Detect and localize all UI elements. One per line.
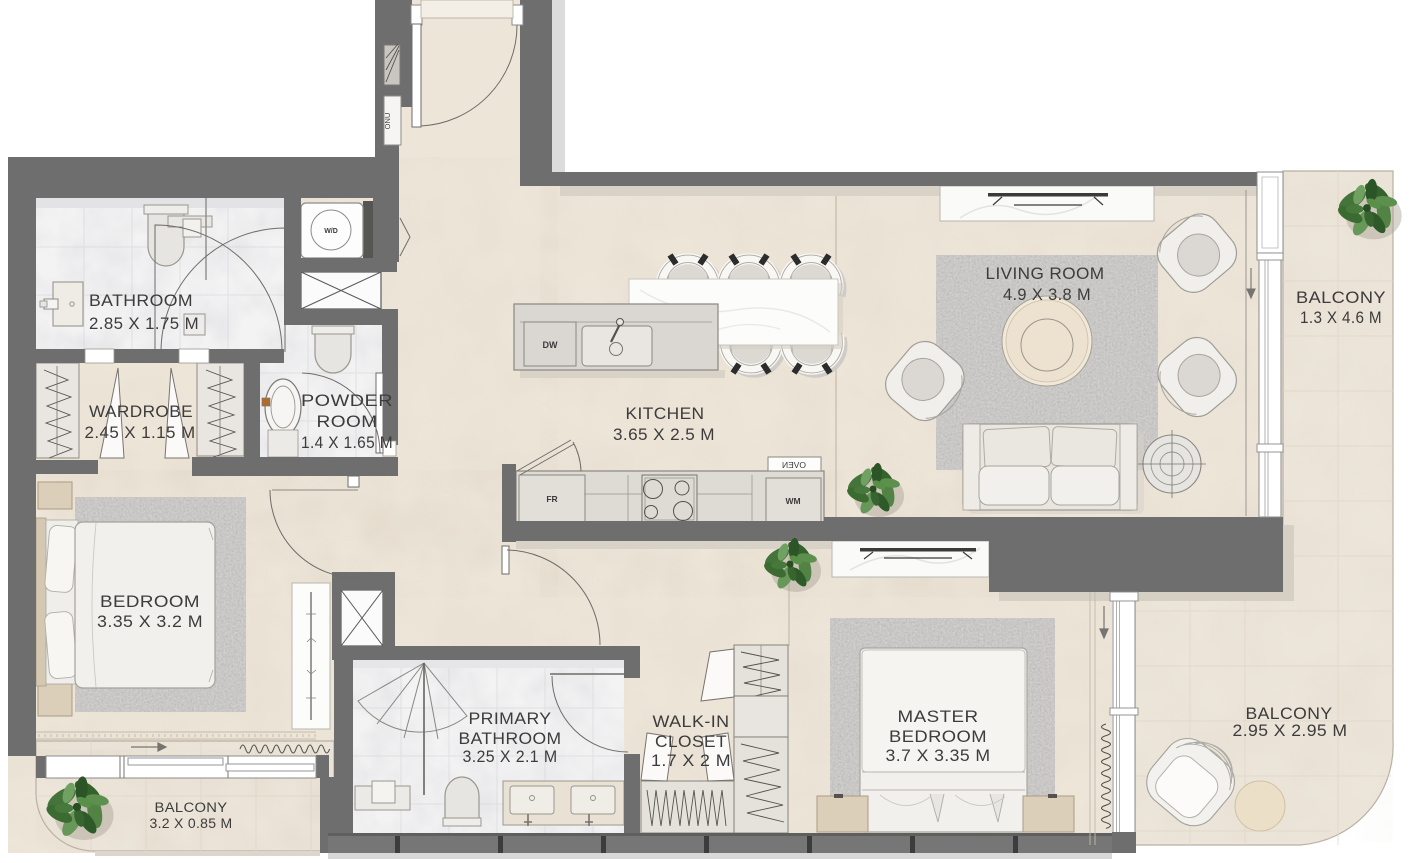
svg-text:1.7 X 2 M: 1.7 X 2 M (651, 751, 731, 770)
svg-text:WARDROBE: WARDROBE (89, 402, 193, 421)
svg-text:3.7 X 3.35 M: 3.7 X 3.35 M (886, 746, 991, 765)
svg-text:3.35 X 3.2 M: 3.35 X 3.2 M (97, 612, 203, 631)
svg-text:BATHROOM: BATHROOM (459, 729, 562, 748)
svg-text:BEDROOM: BEDROOM (100, 592, 200, 611)
svg-text:W/D: W/D (324, 228, 338, 235)
svg-text:PRIMARY: PRIMARY (469, 709, 552, 728)
svg-text:CLOSET: CLOSET (655, 732, 727, 751)
svg-text:2.85 X 1.75 M: 2.85 X 1.75 M (89, 314, 199, 333)
svg-text:ONU: ONU (383, 113, 392, 130)
svg-text:BALCONY: BALCONY (155, 800, 228, 815)
svg-text:2.45 X 1.15 M: 2.45 X 1.15 M (85, 423, 196, 442)
svg-text:LIVING ROOM: LIVING ROOM (986, 264, 1105, 283)
svg-text:1.4 X 1.65 M: 1.4 X 1.65 M (301, 433, 393, 452)
svg-text:1.3 X 4.6 M: 1.3 X 4.6 M (1300, 308, 1382, 327)
svg-text:3.2 X 0.85 M: 3.2 X 0.85 M (150, 816, 233, 831)
svg-text:BEDROOM: BEDROOM (889, 727, 987, 746)
svg-text:2.95 X 2.95 M: 2.95 X 2.95 M (1233, 721, 1348, 740)
svg-text:BALCONY: BALCONY (1296, 288, 1386, 307)
svg-text:DW: DW (543, 340, 558, 350)
svg-text:3.25 X 2.1 M: 3.25 X 2.1 M (463, 747, 558, 766)
svg-text:OVEN: OVEN (782, 460, 806, 470)
svg-text:MASTER: MASTER (898, 707, 979, 726)
svg-text:4.9 X 3.8 M: 4.9 X 3.8 M (1003, 285, 1091, 304)
svg-text:WM: WM (785, 496, 800, 506)
svg-text:KITCHEN: KITCHEN (626, 404, 705, 423)
svg-text:3.65 X 2.5 M: 3.65 X 2.5 M (613, 425, 715, 444)
svg-text:BATHROOM: BATHROOM (89, 291, 193, 310)
svg-text:ROOM: ROOM (317, 412, 378, 431)
svg-text:FR: FR (546, 494, 557, 504)
svg-text:WALK-IN: WALK-IN (653, 712, 730, 731)
svg-text:POWDER: POWDER (301, 391, 393, 410)
